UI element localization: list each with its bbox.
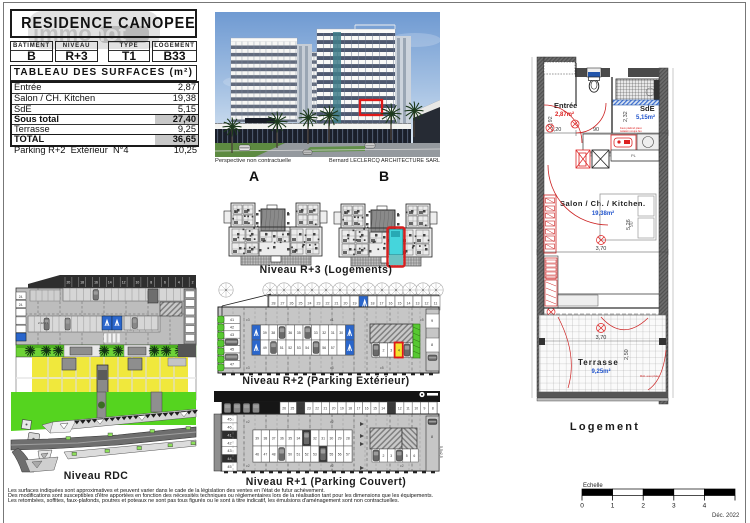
svg-text:5,5x2,5: 5,5x2,5 [439, 446, 443, 458]
svg-text:19,38m²: 19,38m² [592, 210, 614, 217]
svg-text:28: 28 [346, 436, 350, 440]
svg-text:42: 42 [230, 325, 234, 329]
svg-text:c2: c2 [400, 464, 404, 468]
svg-text:13: 13 [416, 301, 420, 305]
svg-text:8: 8 [431, 435, 433, 439]
svg-text:27: 27 [281, 301, 285, 305]
svg-text:20: 20 [344, 301, 348, 305]
svg-text:49: 49 [263, 346, 267, 350]
svg-text:51: 51 [297, 452, 301, 456]
svg-text:45: 45 [227, 418, 231, 422]
svg-text:30: 30 [330, 436, 334, 440]
svg-text:3,70: 3,70 [596, 246, 607, 252]
svg-text:52: 52 [305, 452, 309, 456]
svg-text:14: 14 [381, 406, 385, 410]
svg-text:3: 3 [390, 454, 392, 458]
svg-text:SdE: SdE [640, 104, 655, 113]
svg-text:9,25m²: 9,25m² [591, 368, 610, 375]
svg-text:4: 4 [703, 503, 707, 510]
svg-text:50: 50 [288, 452, 292, 456]
svg-text:c3: c3 [246, 366, 250, 370]
svg-text:24.: 24. [19, 303, 24, 307]
svg-text:45: 45 [230, 348, 234, 352]
svg-text:10: 10 [414, 406, 418, 410]
svg-text:9: 9 [431, 319, 433, 323]
svg-text:c3: c3 [330, 366, 334, 370]
svg-text:20: 20 [67, 281, 71, 285]
svg-text:PL: PL [631, 153, 637, 158]
svg-text:15: 15 [373, 406, 377, 410]
svg-text:32: 32 [313, 436, 317, 440]
svg-text:4: 4 [178, 281, 180, 285]
svg-text:16: 16 [365, 406, 369, 410]
svg-text:4: 4 [398, 348, 400, 352]
svg-text:8: 8 [432, 406, 434, 410]
svg-text:14: 14 [108, 281, 112, 285]
svg-text:21: 21 [335, 301, 339, 305]
svg-text:Terrasse: Terrasse [578, 358, 619, 367]
svg-text:3,70: 3,70 [596, 335, 607, 341]
svg-text:28: 28 [272, 301, 276, 305]
svg-text:46: 46 [227, 426, 231, 430]
svg-text:23: 23 [307, 406, 311, 410]
svg-text:12: 12 [122, 281, 126, 285]
svg-text:2,32: 2,32 [623, 111, 629, 122]
svg-text:2: 2 [192, 281, 194, 285]
svg-text:43: 43 [227, 449, 231, 453]
svg-text:57: 57 [346, 452, 350, 456]
svg-text:51: 51 [280, 346, 284, 350]
svg-text:8: 8 [150, 281, 152, 285]
svg-text:Echelle: Echelle [583, 483, 603, 489]
svg-text:2,50: 2,50 [624, 349, 630, 360]
svg-text:RAL eau pluie: RAL eau pluie [640, 374, 659, 378]
svg-text:5,26: 5,26 [626, 219, 632, 230]
svg-text:c1: c1 [330, 318, 334, 322]
svg-text:c2: c2 [246, 420, 250, 424]
svg-text:35: 35 [297, 331, 301, 335]
svg-text:52: 52 [288, 346, 292, 350]
svg-text:22: 22 [326, 301, 330, 305]
svg-text:26: 26 [290, 301, 294, 305]
svg-text:3: 3 [390, 348, 392, 352]
svg-text:24.: 24. [19, 295, 24, 299]
svg-text:53: 53 [297, 346, 301, 350]
svg-text:55: 55 [330, 452, 334, 456]
svg-text:c5: c5 [420, 318, 424, 322]
svg-text:24: 24 [308, 301, 312, 305]
svg-text:46: 46 [255, 452, 259, 456]
svg-text:19: 19 [353, 301, 357, 305]
svg-text:54: 54 [305, 346, 309, 350]
svg-text:25: 25 [299, 301, 303, 305]
svg-text:c5: c5 [380, 366, 384, 370]
svg-text:c2: c2 [246, 464, 250, 468]
svg-text:6: 6 [413, 454, 415, 458]
svg-text:56: 56 [322, 346, 326, 350]
svg-text:41: 41 [227, 433, 231, 437]
svg-text:37: 37 [272, 436, 276, 440]
svg-text:20: 20 [332, 406, 336, 410]
svg-text:c2: c2 [330, 464, 334, 468]
svg-text:6: 6 [164, 281, 166, 285]
svg-text:15: 15 [398, 301, 402, 305]
svg-text:12: 12 [398, 406, 402, 410]
svg-text:32: 32 [322, 331, 326, 335]
svg-text:3: 3 [672, 503, 676, 510]
svg-text:isolation coupe feu: isolation coupe feu [620, 129, 642, 133]
svg-text:Entrée: Entrée [554, 101, 577, 110]
svg-text:21: 21 [324, 406, 328, 410]
svg-text:10: 10 [136, 281, 140, 285]
svg-text:42: 42 [227, 441, 231, 445]
svg-text:5,15m²: 5,15m² [636, 114, 655, 121]
svg-text:16: 16 [94, 281, 98, 285]
svg-text:0: 0 [580, 503, 584, 510]
svg-text:23: 23 [317, 301, 321, 305]
svg-text:16: 16 [389, 301, 393, 305]
svg-text:38: 38 [264, 436, 268, 440]
svg-text:5: 5 [406, 454, 408, 458]
svg-text:9: 9 [424, 406, 426, 410]
svg-text:2: 2 [641, 503, 645, 510]
svg-text:35: 35 [288, 436, 292, 440]
svg-text:c2: c2 [330, 420, 334, 424]
svg-text:11: 11 [406, 406, 410, 410]
svg-text:12: 12 [425, 301, 429, 305]
svg-text:36: 36 [280, 436, 284, 440]
svg-text:43: 43 [230, 333, 234, 337]
svg-text:33: 33 [314, 331, 318, 335]
svg-text:36: 36 [288, 331, 292, 335]
svg-text:2: 2 [383, 348, 385, 352]
svg-text:31: 31 [331, 331, 335, 335]
svg-text:18: 18 [371, 301, 375, 305]
svg-text:38: 38 [271, 331, 275, 335]
svg-text:14: 14 [407, 301, 411, 305]
svg-text:4,66: 4,66 [538, 223, 544, 234]
svg-text:47: 47 [230, 362, 234, 366]
svg-text:c3: c3 [246, 318, 250, 322]
svg-text:41: 41 [230, 318, 234, 322]
svg-text:13: 13 [390, 406, 394, 410]
svg-text:18: 18 [80, 281, 84, 285]
svg-text:44: 44 [227, 457, 231, 461]
svg-text:26: 26 [282, 406, 286, 410]
svg-text:8: 8 [431, 343, 433, 347]
svg-text:29: 29 [338, 436, 342, 440]
svg-text:17: 17 [380, 301, 384, 305]
svg-text:48: 48 [272, 452, 276, 456]
svg-text:45: 45 [227, 465, 231, 469]
svg-text:24: 24 [299, 406, 303, 410]
svg-text:25: 25 [291, 406, 295, 410]
svg-text:2: 2 [383, 454, 385, 458]
svg-text:47: 47 [264, 452, 268, 456]
svg-text:31: 31 [321, 436, 325, 440]
svg-text:2.12,13: 2.12,13 [38, 321, 48, 325]
svg-text:18: 18 [348, 406, 352, 410]
svg-text:39: 39 [263, 331, 267, 335]
svg-text:Salon / Ch. / Kitchen.: Salon / Ch. / Kitchen. [560, 199, 646, 208]
svg-text:17: 17 [357, 406, 361, 410]
svg-text:30: 30 [339, 331, 343, 335]
svg-text:90: 90 [593, 127, 599, 133]
svg-text:19: 19 [340, 406, 344, 410]
svg-text:53: 53 [313, 452, 317, 456]
svg-text:11: 11 [434, 301, 438, 305]
svg-text:56: 56 [338, 452, 342, 456]
svg-text:22: 22 [315, 406, 319, 410]
svg-text:34: 34 [297, 436, 301, 440]
svg-text:39: 39 [255, 436, 259, 440]
svg-text:57: 57 [331, 346, 335, 350]
svg-text:1: 1 [611, 503, 615, 510]
